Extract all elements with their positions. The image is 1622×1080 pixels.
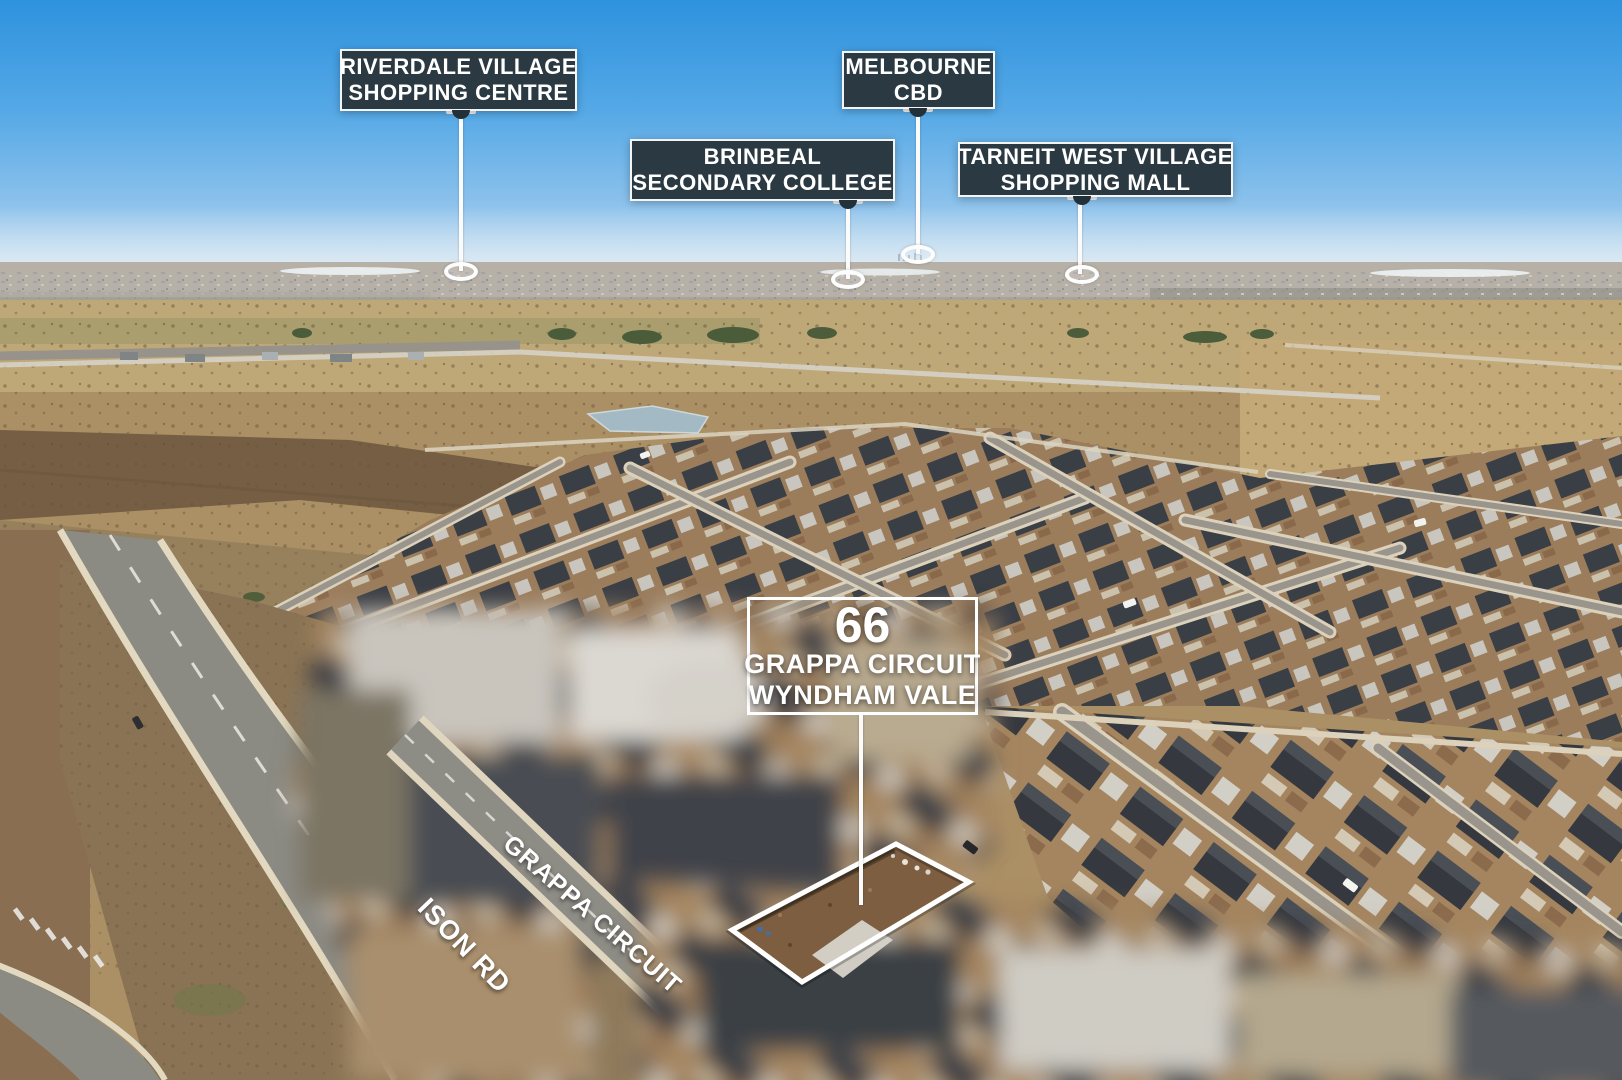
callout-line: SECONDARY COLLEGE: [632, 170, 892, 196]
callout-line: RIVERDALE VILLAGE: [340, 54, 577, 80]
callout-line: BRINBEAL: [704, 144, 822, 170]
callout-tarneit-pin-ring: [1065, 265, 1099, 284]
callout-melbourne-cbd-stem: [916, 112, 920, 254]
callout-tarneit-west-village-shopping-mall: TARNEIT WEST VILLAGE SHOPPING MALL: [958, 142, 1233, 197]
property-marker: 66 GRAPPA CIRCUIT WYNDHAM VALE: [747, 597, 978, 715]
callout-brinbeal-pin-ring: [831, 270, 865, 289]
callout-riverdale-pin-ring: [444, 262, 478, 281]
callout-melbourne-cbd: MELBOURNE CBD: [842, 51, 995, 109]
callout-line: MELBOURNE: [845, 54, 991, 80]
callout-brinbeal-stem: [846, 204, 850, 279]
property-marker-stem: [859, 715, 863, 905]
property-lot-number: 66: [835, 601, 891, 649]
callout-line: SHOPPING MALL: [1001, 170, 1191, 196]
property-street: GRAPPA CIRCUIT: [744, 649, 981, 680]
property-suburb: WYNDHAM VALE: [749, 680, 976, 711]
aerial-property-photo: RIVERDALE VILLAGE SHOPPING CENTRE MELBOU…: [0, 0, 1622, 1080]
callout-line: TARNEIT WEST VILLAGE: [958, 144, 1233, 170]
callout-melbourne-cbd-pin-ring: [901, 245, 935, 264]
callout-tarneit-stem: [1078, 200, 1082, 274]
callout-line: SHOPPING CENTRE: [348, 80, 568, 106]
callout-riverdale-village-shopping-centre: RIVERDALE VILLAGE SHOPPING CENTRE: [340, 49, 577, 111]
callout-line: CBD: [894, 80, 943, 106]
callout-brinbeal-secondary-college: BRINBEAL SECONDARY COLLEGE: [630, 139, 895, 201]
callout-riverdale-stem: [459, 114, 463, 271]
